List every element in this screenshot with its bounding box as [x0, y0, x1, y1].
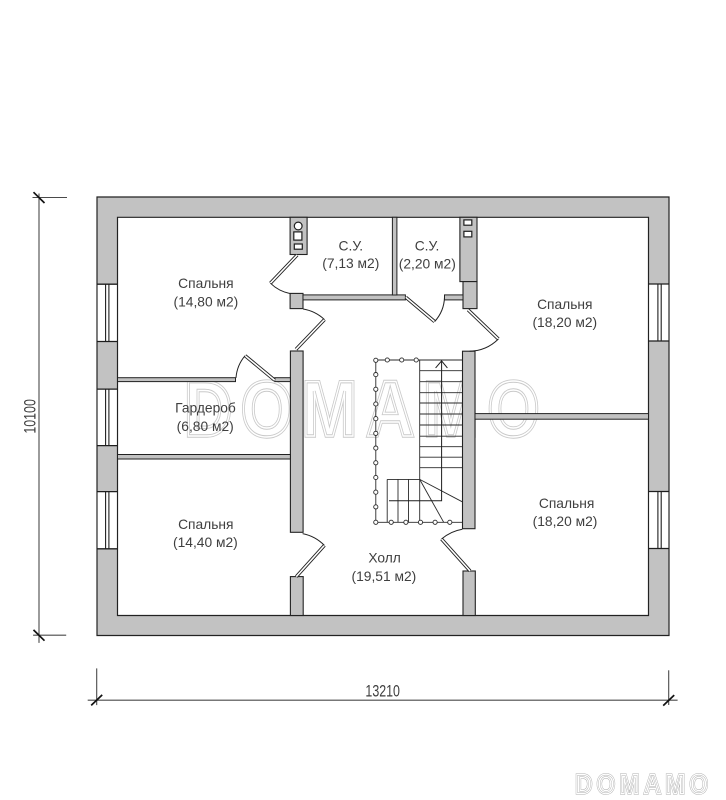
svg-text:С.У.: С.У. — [339, 238, 364, 253]
svg-text:DOMAMO: DOMAMO — [184, 365, 548, 453]
svg-text:(14,80 м2): (14,80 м2) — [174, 294, 239, 309]
svg-text:13210: 13210 — [365, 683, 400, 701]
svg-text:Спальня: Спальня — [178, 517, 233, 532]
svg-text:Гардероб: Гардероб — [175, 400, 236, 415]
svg-text:(19,51 м2): (19,51 м2) — [352, 569, 417, 584]
svg-text:(14,40 м2): (14,40 м2) — [173, 535, 238, 550]
svg-text:10100: 10100 — [22, 399, 40, 434]
svg-text:(18,20 м2): (18,20 м2) — [533, 514, 598, 529]
svg-text:(18,20 м2): (18,20 м2) — [532, 315, 597, 330]
svg-text:С.У.: С.У. — [415, 238, 440, 253]
svg-text:Спальня: Спальня — [537, 297, 592, 312]
svg-text:(2,20 м2): (2,20 м2) — [399, 256, 456, 271]
svg-text:Спальня: Спальня — [178, 276, 233, 291]
svg-text:DOMAMO: DOMAMO — [575, 768, 712, 800]
svg-text:Спальня: Спальня — [539, 496, 594, 511]
svg-text:(6,80 м2): (6,80 м2) — [177, 419, 234, 434]
svg-text:(7,13 м2): (7,13 м2) — [322, 256, 379, 271]
svg-text:Холл: Холл — [368, 550, 401, 565]
